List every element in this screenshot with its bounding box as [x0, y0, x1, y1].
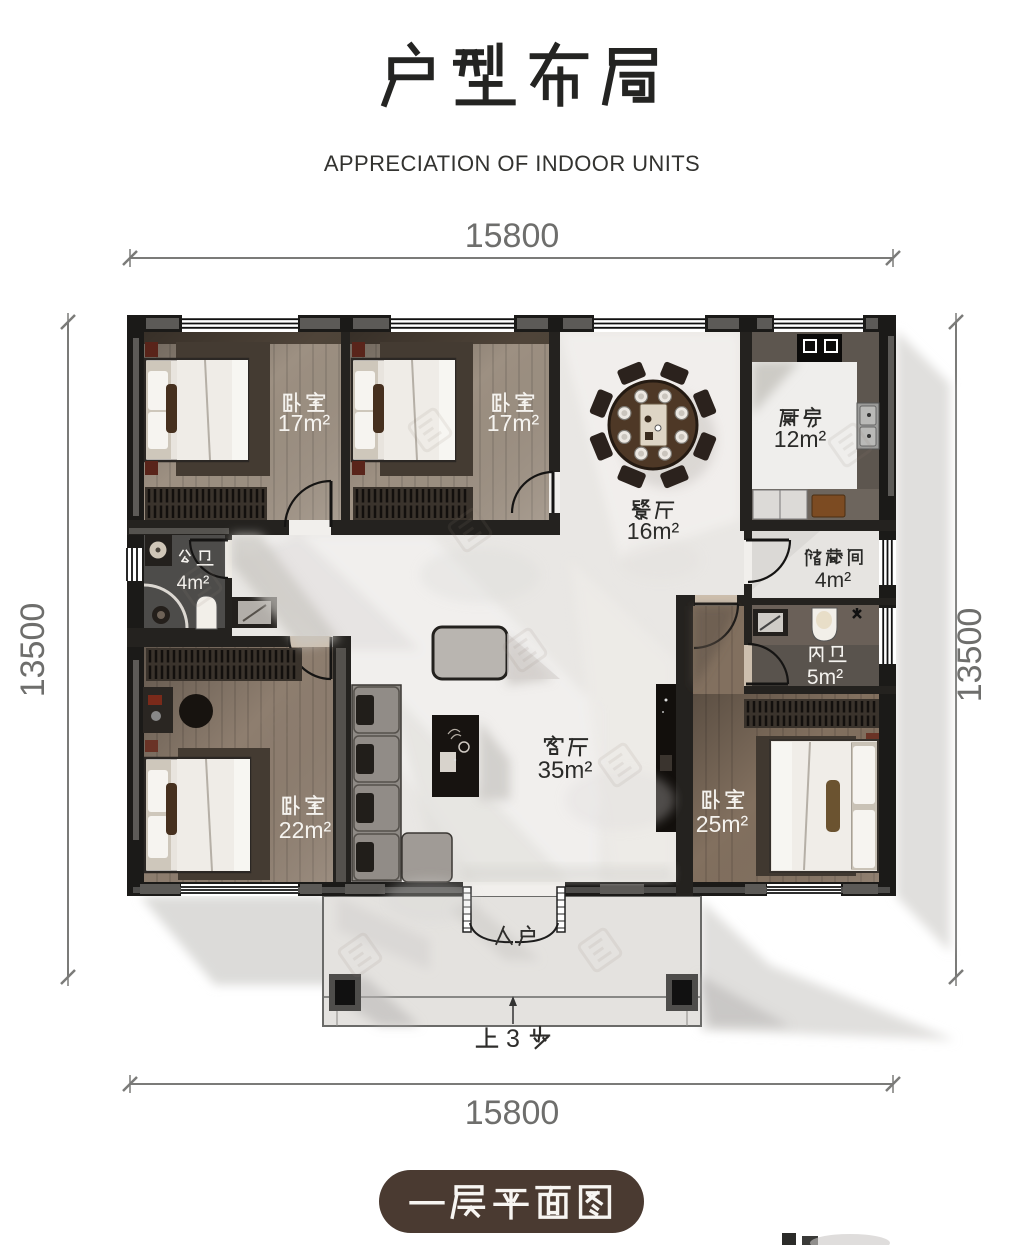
- svg-text:4m²: 4m²: [815, 569, 851, 592]
- svg-text:5m²: 5m²: [807, 666, 843, 689]
- svg-text:13500: 13500: [14, 603, 52, 698]
- svg-text:17m²: 17m²: [278, 410, 331, 436]
- svg-text:APPRECIATION OF INDOOR UNITS: APPRECIATION OF INDOOR UNITS: [324, 151, 700, 176]
- svg-text:3: 3: [506, 1025, 520, 1053]
- svg-text:15800: 15800: [465, 217, 560, 255]
- svg-text:17m²: 17m²: [487, 410, 540, 436]
- svg-text:15800: 15800: [465, 1094, 560, 1132]
- svg-text:13500: 13500: [951, 608, 989, 703]
- svg-text:16m²: 16m²: [627, 518, 680, 544]
- svg-text:25m²: 25m²: [696, 811, 749, 837]
- svg-text:12m²: 12m²: [774, 426, 827, 452]
- svg-text:22m²: 22m²: [279, 817, 332, 843]
